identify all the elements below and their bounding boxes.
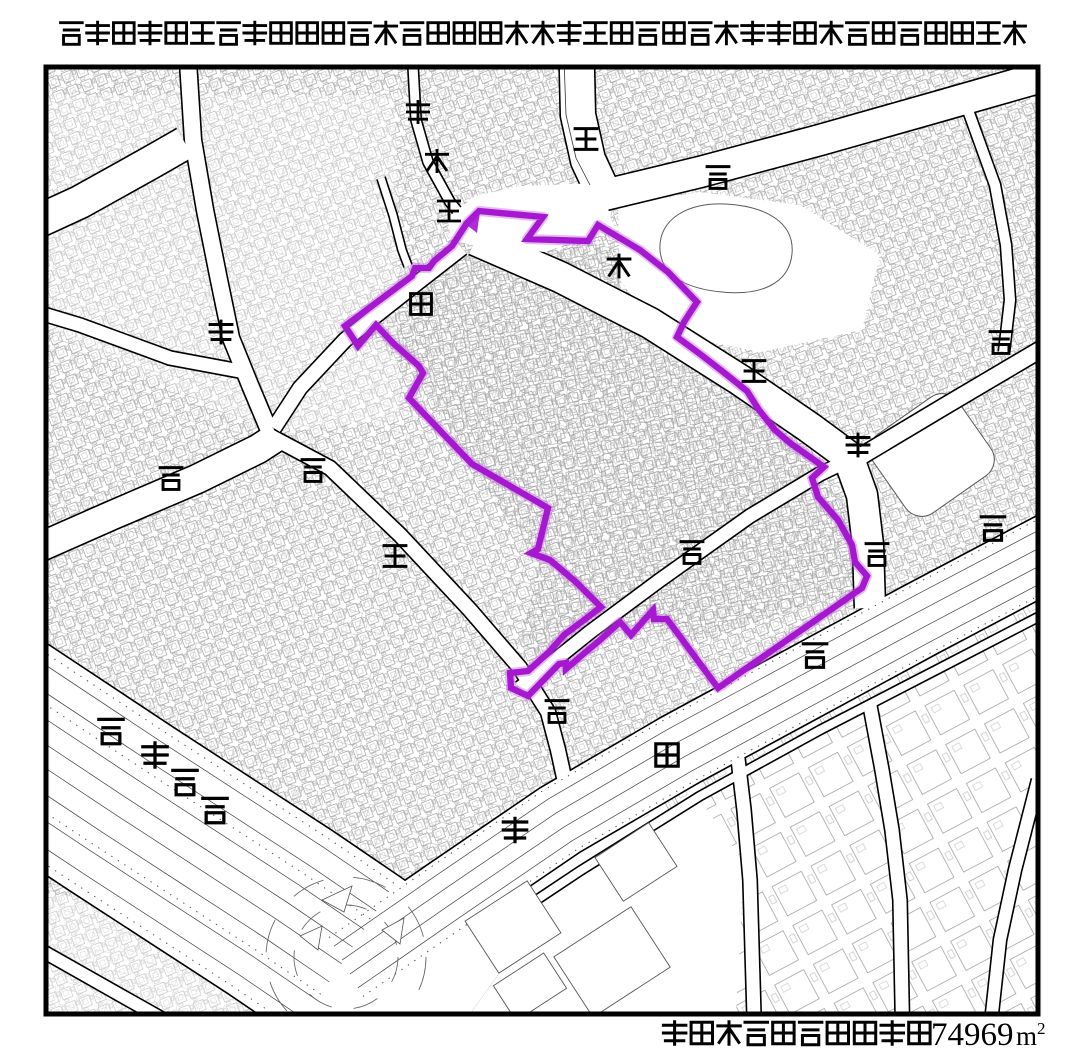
svg-text:74969: 74969 (931, 1017, 1014, 1053)
